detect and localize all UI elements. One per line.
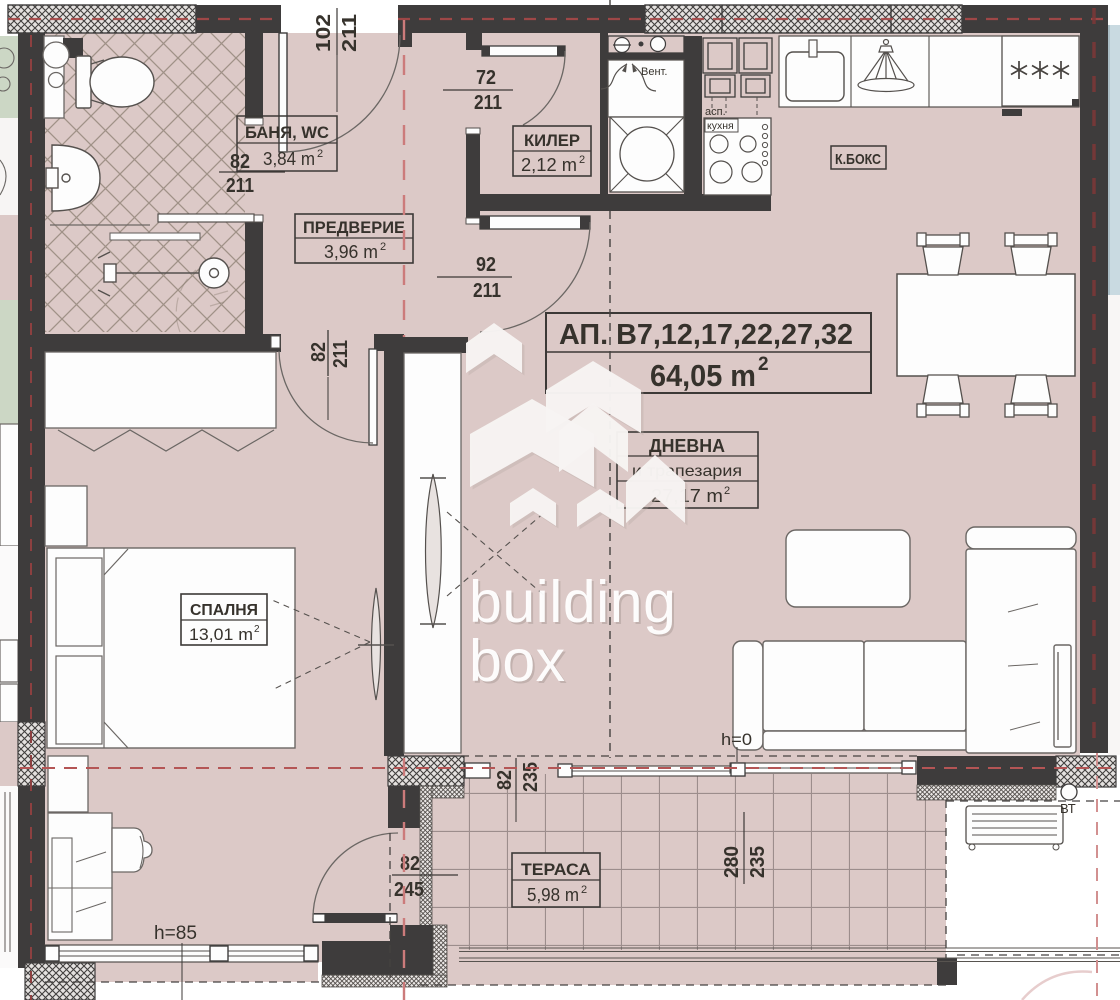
svg-text:АП. В7,12,17,22,27,32: АП. В7,12,17,22,27,32: [559, 319, 853, 351]
svg-text:БАНЯ, WC: БАНЯ, WC: [245, 123, 329, 142]
svg-text:280: 280: [721, 846, 743, 878]
svg-text:235: 235: [520, 762, 542, 792]
svg-text:Вент.: Вент.: [641, 66, 667, 78]
svg-text:211: 211: [339, 14, 361, 52]
svg-text:асп.: асп.: [705, 106, 726, 118]
svg-text:2: 2: [254, 624, 260, 635]
svg-text:211: 211: [226, 175, 254, 197]
svg-text:2: 2: [724, 485, 730, 497]
svg-text:h=85: h=85: [154, 923, 197, 944]
svg-text:2: 2: [579, 154, 585, 166]
svg-text:235: 235: [747, 846, 769, 878]
svg-text:82: 82: [308, 342, 330, 362]
svg-text:211: 211: [473, 280, 501, 302]
svg-text:82: 82: [230, 151, 250, 173]
svg-text:92: 92: [476, 254, 496, 276]
svg-text:2: 2: [317, 148, 323, 160]
svg-text:building: building: [469, 569, 676, 635]
svg-text:К.БОКС: К.БОКС: [835, 151, 881, 168]
svg-text:2: 2: [758, 354, 769, 375]
svg-text:ТЕРАСА: ТЕРАСА: [521, 860, 591, 879]
svg-text:СПАЛНЯ: СПАЛНЯ: [190, 602, 258, 619]
svg-text:64,05 m: 64,05 m: [650, 358, 756, 393]
svg-text:h=0: h=0: [721, 730, 752, 749]
svg-text:ПРЕДВЕРИЕ: ПРЕДВЕРИЕ: [303, 218, 405, 237]
svg-text:13,01 m: 13,01 m: [189, 625, 253, 644]
svg-text:box: box: [469, 628, 566, 694]
svg-text:72: 72: [476, 67, 496, 89]
svg-text:ВТ: ВТ: [1060, 801, 1076, 816]
svg-text:82: 82: [494, 770, 516, 790]
svg-text:2: 2: [380, 241, 386, 253]
svg-text:кухня: кухня: [707, 120, 734, 132]
svg-text:2: 2: [581, 884, 587, 896]
svg-text:102: 102: [313, 14, 335, 52]
svg-text:211: 211: [474, 92, 502, 114]
svg-text:245: 245: [394, 879, 424, 901]
svg-text:3,84 m: 3,84 m: [263, 149, 315, 169]
svg-text:КИЛЕР: КИЛЕР: [524, 131, 580, 150]
svg-text:5,98 m: 5,98 m: [527, 885, 579, 905]
svg-text:211: 211: [330, 340, 352, 368]
svg-text:ДНЕВНА: ДНЕВНА: [649, 436, 725, 456]
svg-text:2,12 m: 2,12 m: [521, 155, 577, 175]
svg-text:3,96 m: 3,96 m: [324, 242, 378, 262]
